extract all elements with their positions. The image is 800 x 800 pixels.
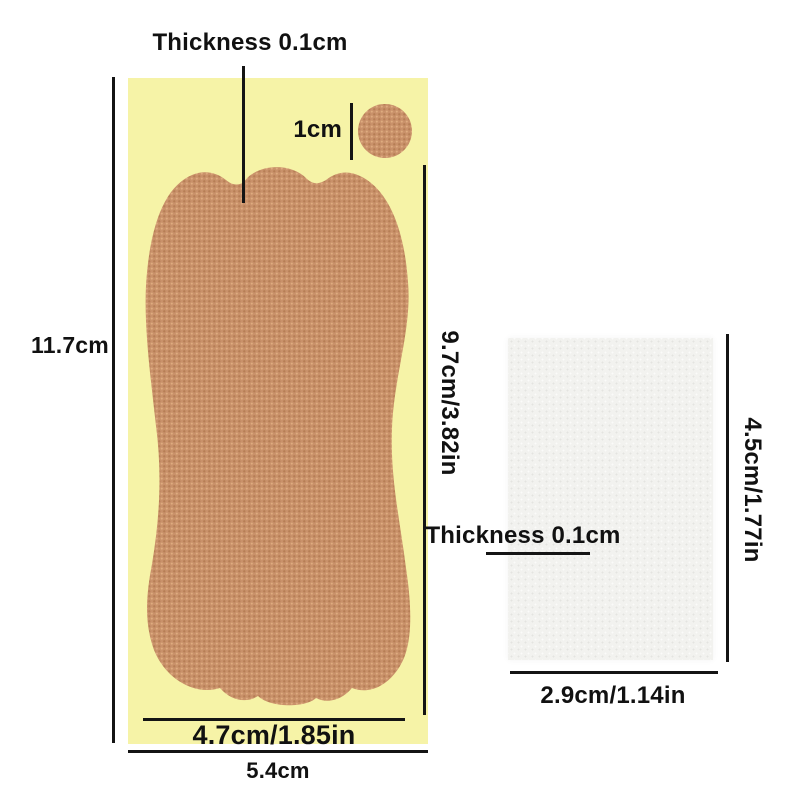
patch-thickness-label: Thickness 0.1cm: [150, 30, 350, 56]
pad-height-label: 4.5cm/1.77in: [738, 417, 766, 562]
round-patch: [358, 104, 412, 158]
circle-diameter-line: [350, 103, 353, 160]
pad-width-dimension-line: [510, 671, 718, 674]
pad-thickness-label: Thickness 0.1cm: [423, 523, 623, 549]
pad-height-dimension-line: [726, 334, 729, 662]
sheet-height-label: 11.7cm: [25, 333, 115, 358]
patch-height-dimension-line: [423, 165, 426, 715]
pad-width-label: 2.9cm/1.14in: [513, 683, 713, 709]
sheet-height-dimension-line: [112, 77, 115, 743]
patch-width-label: 4.7cm/1.85in: [154, 721, 394, 751]
pad-thickness-pointer-line: [486, 552, 590, 555]
patch-height-label: 9.7cm/3.82in: [435, 330, 463, 475]
sheet-width-label: 5.4cm: [218, 759, 338, 783]
patch-thickness-pointer-line: [242, 66, 245, 203]
patch-shapes: [128, 78, 428, 744]
circle-diameter-label: 1cm: [290, 117, 342, 143]
foam-pad: [508, 338, 713, 660]
product-dimension-diagram: Thickness 0.1cm 1cm 11.7cm 9.7cm/3.82in …: [0, 0, 800, 800]
heel-patch: [146, 167, 411, 705]
